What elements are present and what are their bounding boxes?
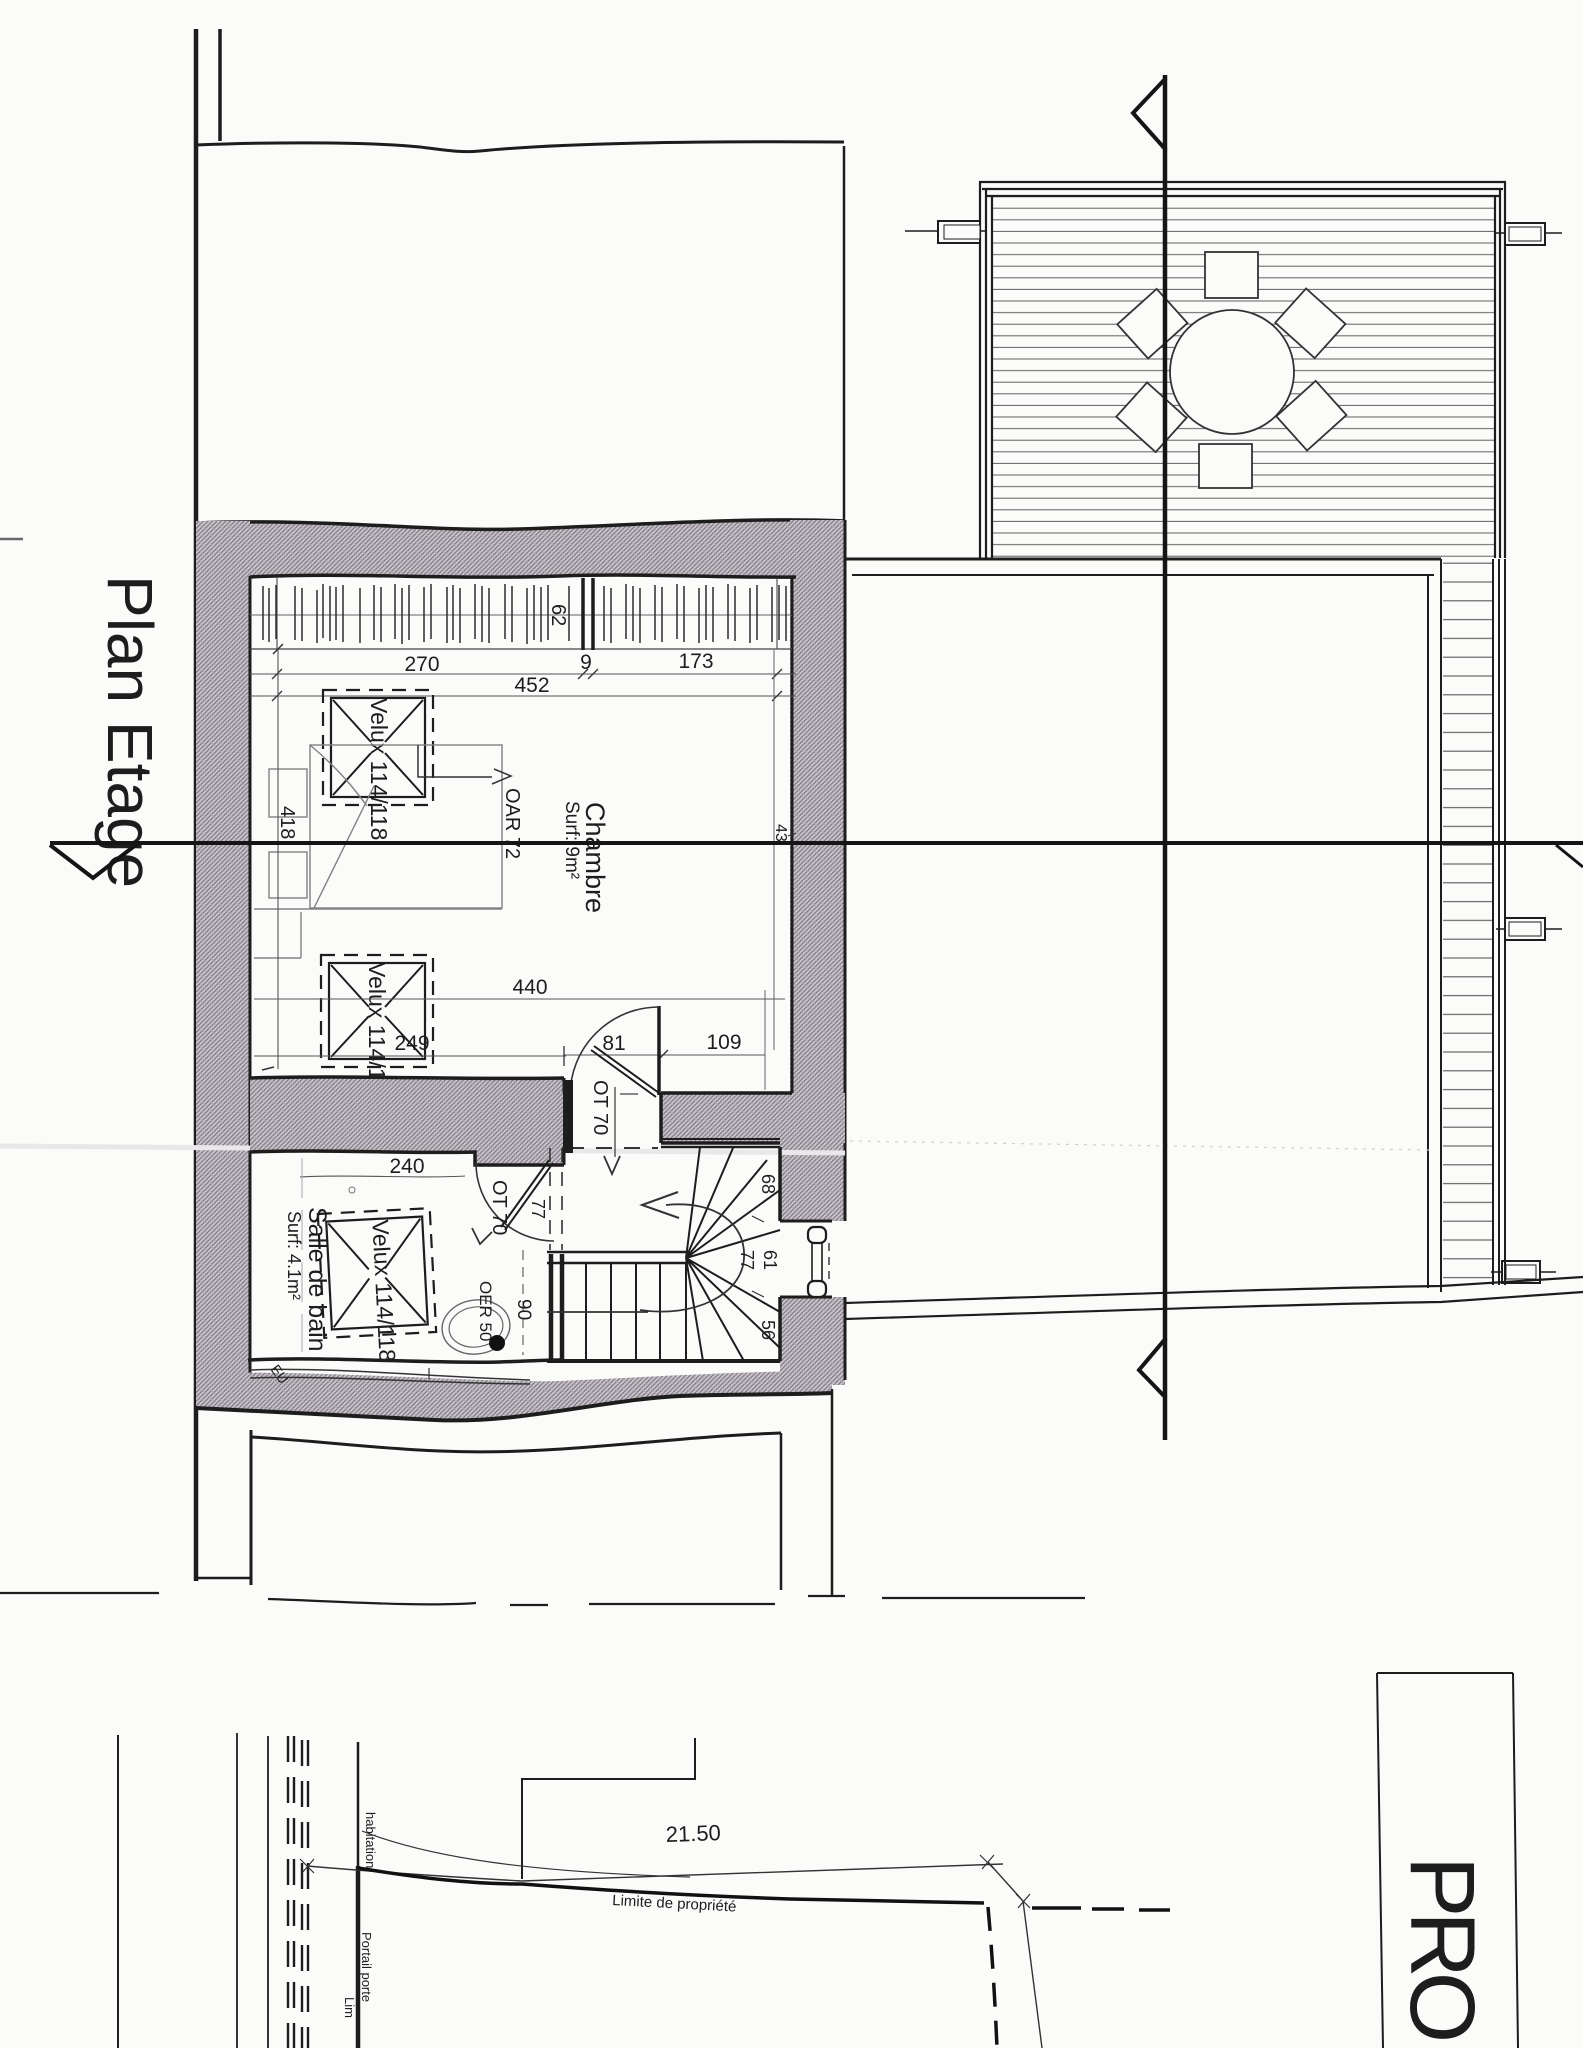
svg-text:418: 418 [276, 806, 298, 839]
svg-text:Chambre: Chambre [580, 802, 610, 913]
svg-text:452: 452 [514, 674, 549, 697]
svg-text:77: 77 [737, 1250, 757, 1270]
svg-text:56: 56 [758, 1320, 778, 1340]
svg-text:270: 270 [404, 653, 439, 676]
svg-text:OAR 72: OAR 72 [501, 788, 523, 859]
svg-text:249: 249 [394, 1032, 429, 1055]
svg-text:21.50: 21.50 [665, 1820, 721, 1847]
svg-text:62: 62 [547, 604, 569, 626]
svg-text:Surf: 4.1m²: Surf: 4.1m² [284, 1211, 304, 1300]
svg-text:240: 240 [389, 1155, 424, 1178]
svg-text:Velux 114/118: Velux 114/118 [366, 698, 392, 840]
svg-text:Surf: 9m²: Surf: 9m² [561, 801, 582, 879]
svg-text:PRO: PRO [1391, 1856, 1493, 2040]
svg-text:77: 77 [528, 1199, 548, 1219]
svg-text:68: 68 [758, 1174, 778, 1194]
svg-text:Salle de bain: Salle de bain [303, 1207, 331, 1352]
svg-text:OER 50: OER 50 [476, 1281, 495, 1341]
svg-text:Lim: Lim [342, 1997, 357, 2018]
svg-text:habitation: habitation [363, 1812, 378, 1868]
svg-text:90: 90 [513, 1299, 534, 1320]
svg-text:Portail porte: Portail porte [359, 1932, 374, 2002]
svg-text:81: 81 [602, 1032, 625, 1055]
svg-text:440: 440 [512, 976, 547, 999]
svg-text:43: 43 [772, 824, 789, 842]
svg-text:61: 61 [760, 1250, 780, 1270]
svg-text:OT 70: OT 70 [589, 1080, 611, 1135]
svg-text:9: 9 [580, 651, 592, 674]
svg-text:OT 70: OT 70 [488, 1180, 510, 1235]
svg-text:173: 173 [678, 650, 713, 673]
svg-text:109: 109 [706, 1031, 741, 1054]
